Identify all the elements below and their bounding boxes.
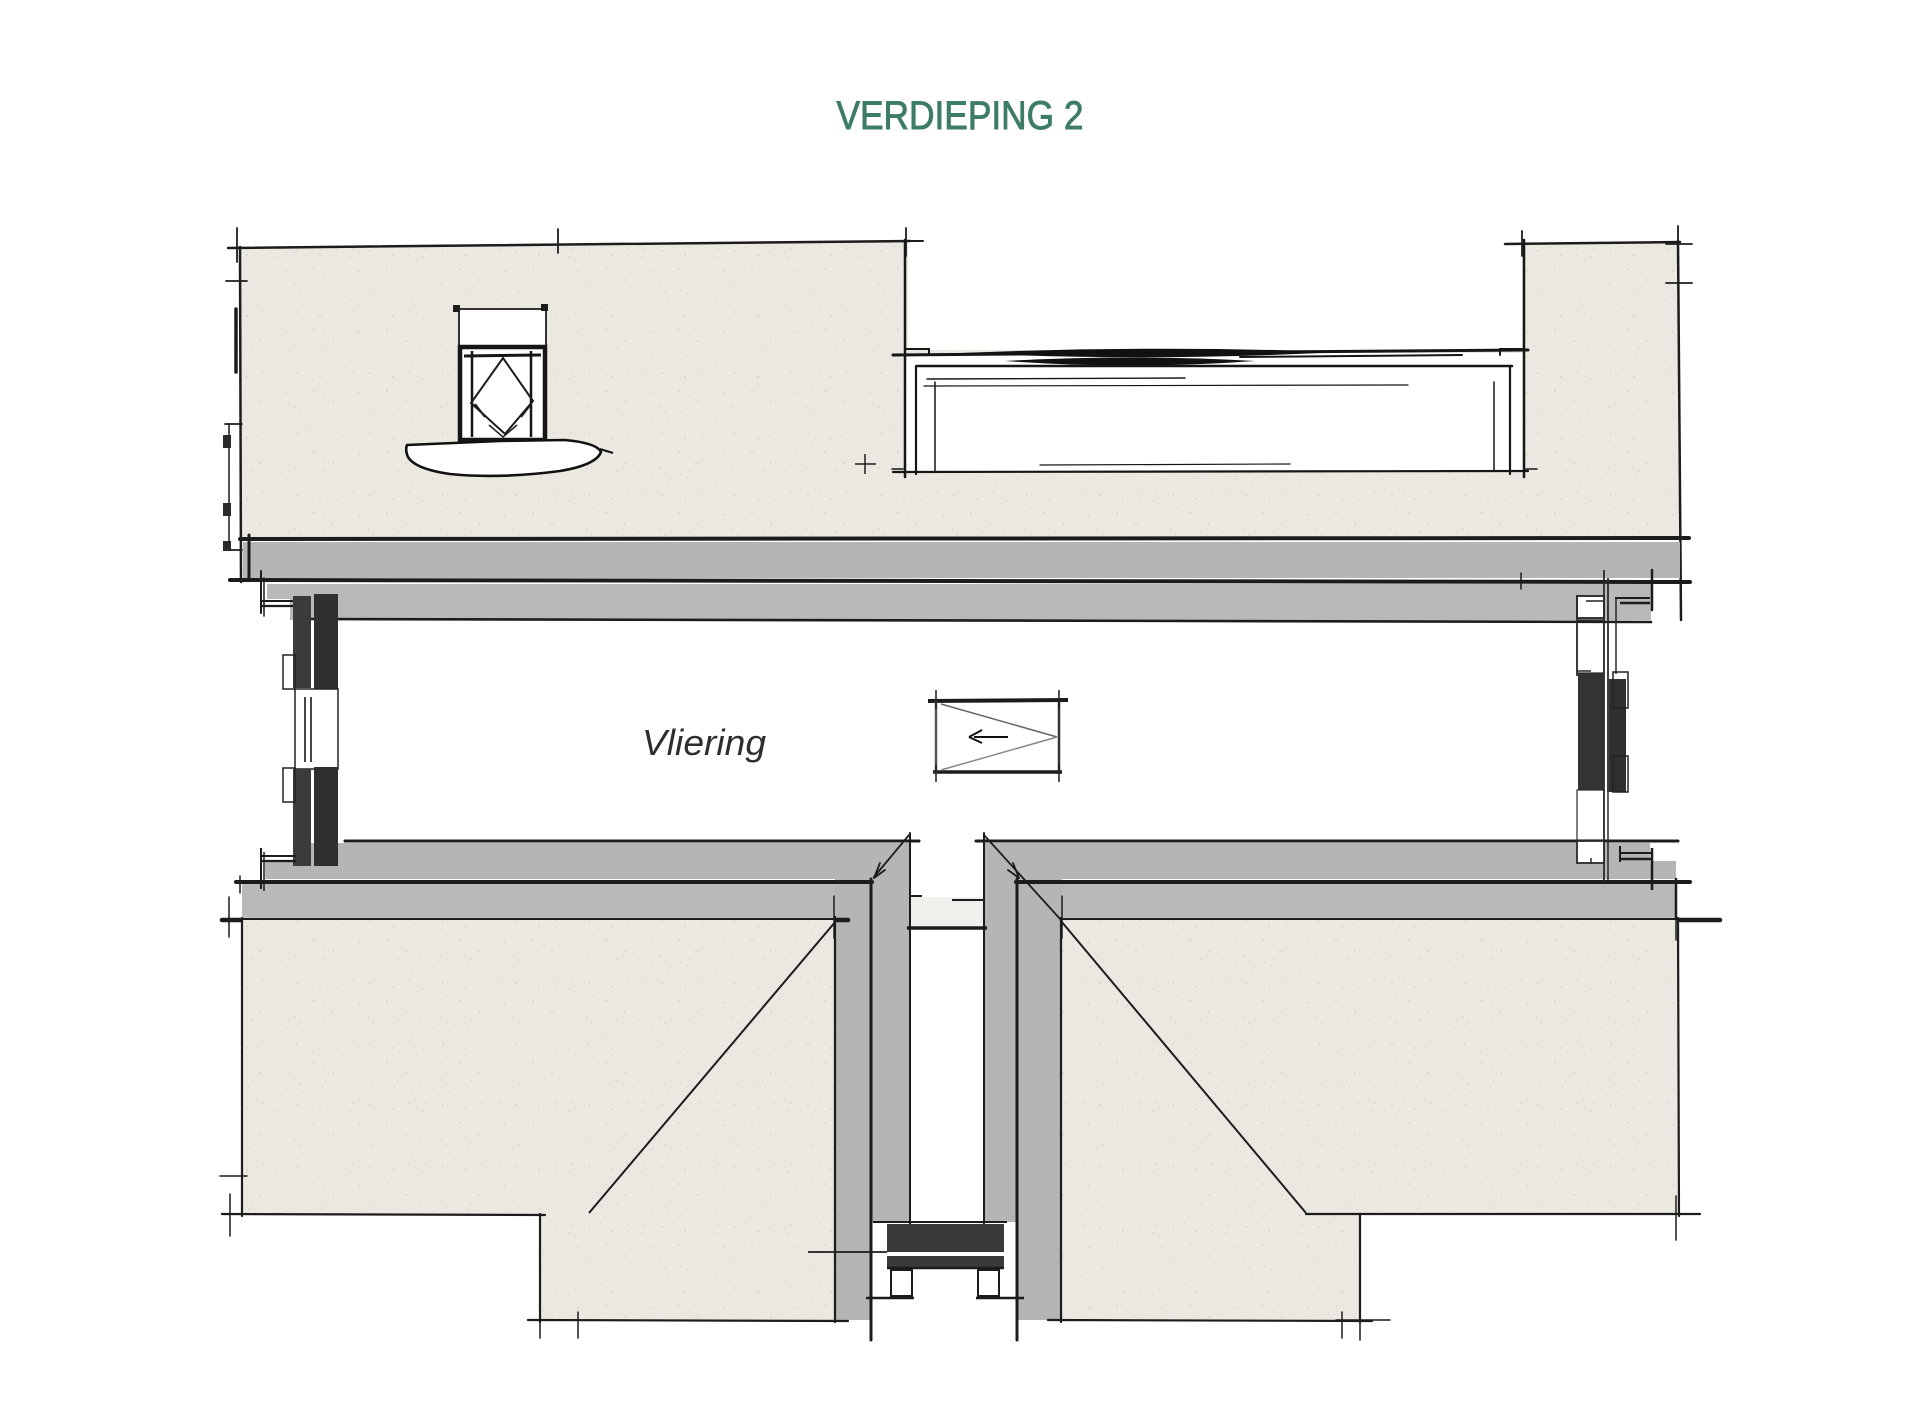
svg-text:Vliering: Vliering: [642, 722, 766, 763]
svg-text:VERDIEPING 2: VERDIEPING 2: [837, 94, 1084, 138]
